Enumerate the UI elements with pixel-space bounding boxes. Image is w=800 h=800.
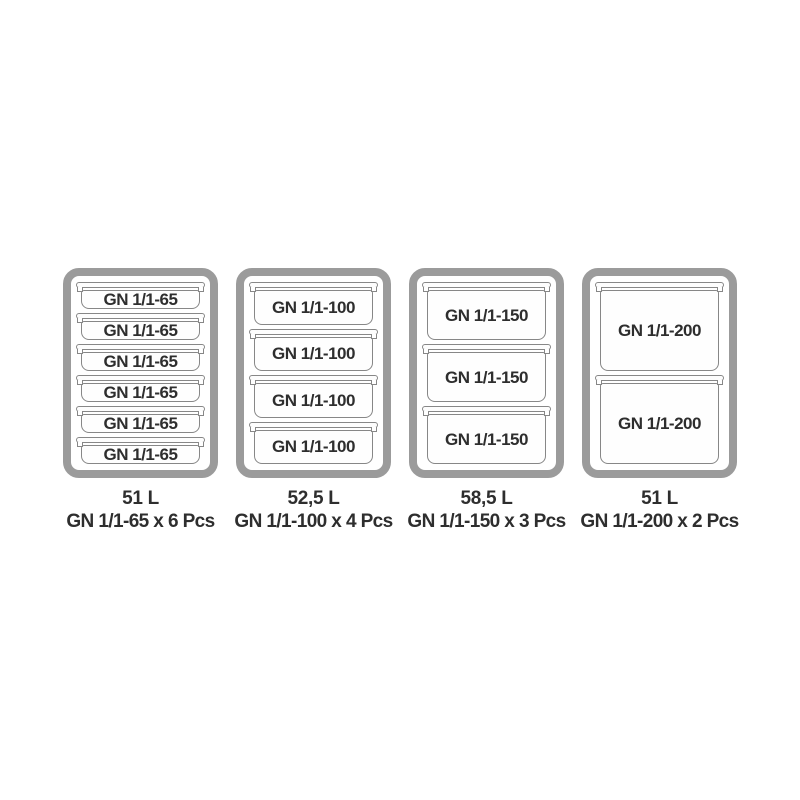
container-pan: GN 1/1-150 — [427, 290, 546, 340]
gn-container: GN 1/1-65 — [76, 437, 205, 464]
container-lid-icon — [249, 282, 378, 288]
container-pan: GN 1/1-65 — [81, 414, 200, 433]
container-label: GN 1/1-200 — [618, 322, 701, 339]
set-frame: GN 1/1-100 GN 1/1-100 GN 1/1-100 — [236, 268, 391, 478]
gn-container: GN 1/1-150 — [422, 282, 551, 340]
gn-container: GN 1/1-65 — [76, 344, 205, 371]
gn-container: GN 1/1-100 — [249, 329, 378, 372]
container-lid-icon — [249, 375, 378, 381]
container-lid-icon — [249, 329, 378, 335]
container-pan: GN 1/1-100 — [254, 290, 373, 325]
container-lid-icon — [422, 344, 551, 350]
container-lid-icon — [249, 422, 378, 428]
gn-container: GN 1/1-65 — [76, 406, 205, 433]
gn-container: GN 1/1-100 — [249, 282, 378, 325]
container-label: GN 1/1-150 — [445, 307, 528, 324]
set-frame: GN 1/1-65 GN 1/1-65 GN 1/1-65 — [63, 268, 218, 478]
container-pan: GN 1/1-200 — [600, 383, 719, 464]
container-label: GN 1/1-100 — [272, 345, 355, 362]
container-lid-icon — [422, 406, 551, 412]
container-lid-icon — [76, 437, 205, 443]
container-label: GN 1/1-100 — [272, 299, 355, 316]
container-pan: GN 1/1-65 — [81, 383, 200, 402]
volume-label: 51 L — [66, 487, 214, 510]
pieces-label: GN 1/1-100 x 4 Pcs — [234, 510, 392, 533]
container-set-gn-1-1-100: GN 1/1-100 GN 1/1-100 GN 1/1-100 — [236, 268, 391, 533]
container-label: GN 1/1-65 — [104, 415, 178, 432]
container-pan: GN 1/1-100 — [254, 430, 373, 465]
pieces-label: GN 1/1-65 x 6 Pcs — [66, 510, 214, 533]
gn-container: GN 1/1-150 — [422, 406, 551, 464]
container-pan: GN 1/1-150 — [427, 414, 546, 464]
container-pan: GN 1/1-100 — [254, 383, 373, 418]
container-set-gn-1-1-200: GN 1/1-200 GN 1/1-200 51 L GN 1/1-200 x … — [582, 268, 737, 533]
container-pan: GN 1/1-150 — [427, 352, 546, 402]
gn-container: GN 1/1-200 — [595, 282, 724, 371]
container-pan: GN 1/1-100 — [254, 337, 373, 372]
set-frame: GN 1/1-150 GN 1/1-150 GN 1/1-150 — [409, 268, 564, 478]
container-lid-icon — [76, 406, 205, 412]
container-label: GN 1/1-100 — [272, 392, 355, 409]
gn-container: GN 1/1-100 — [249, 375, 378, 418]
container-lid-icon — [76, 282, 205, 288]
gn-container: GN 1/1-65 — [76, 282, 205, 309]
container-pan: GN 1/1-65 — [81, 321, 200, 340]
container-label: GN 1/1-65 — [104, 322, 178, 339]
container-pan: GN 1/1-65 — [81, 290, 200, 309]
container-label: GN 1/1-100 — [272, 438, 355, 455]
container-lid-icon — [595, 282, 724, 288]
container-label: GN 1/1-65 — [104, 446, 178, 463]
pieces-label: GN 1/1-200 x 2 Pcs — [580, 510, 738, 533]
gn-container: GN 1/1-65 — [76, 313, 205, 340]
gn-container: GN 1/1-200 — [595, 375, 724, 464]
set-caption: 52,5 L GN 1/1-100 x 4 Pcs — [234, 487, 392, 533]
container-lid-icon — [76, 313, 205, 319]
pieces-label: GN 1/1-150 x 3 Pcs — [407, 510, 565, 533]
set-caption: 58,5 L GN 1/1-150 x 3 Pcs — [407, 487, 565, 533]
container-label: GN 1/1-150 — [445, 369, 528, 386]
gn-container: GN 1/1-65 — [76, 375, 205, 402]
product-diagram: GN 1/1-65 GN 1/1-65 GN 1/1-65 — [0, 0, 800, 800]
container-label: GN 1/1-200 — [618, 415, 701, 432]
container-set-gn-1-1-65: GN 1/1-65 GN 1/1-65 GN 1/1-65 — [63, 268, 218, 533]
gn-container: GN 1/1-150 — [422, 344, 551, 402]
container-label: GN 1/1-65 — [104, 291, 178, 308]
volume-label: 51 L — [580, 487, 738, 510]
set-caption: 51 L GN 1/1-65 x 6 Pcs — [66, 487, 214, 533]
container-sets-row: GN 1/1-65 GN 1/1-65 GN 1/1-65 — [0, 268, 800, 533]
container-pan: GN 1/1-65 — [81, 352, 200, 371]
container-label: GN 1/1-65 — [104, 384, 178, 401]
container-lid-icon — [76, 375, 205, 381]
gn-container: GN 1/1-100 — [249, 422, 378, 465]
container-label: GN 1/1-65 — [104, 353, 178, 370]
container-pan: GN 1/1-65 — [81, 445, 200, 464]
container-pan: GN 1/1-200 — [600, 290, 719, 371]
volume-label: 58,5 L — [407, 487, 565, 510]
container-lid-icon — [76, 344, 205, 350]
container-lid-icon — [422, 282, 551, 288]
volume-label: 52,5 L — [234, 487, 392, 510]
set-caption: 51 L GN 1/1-200 x 2 Pcs — [580, 487, 738, 533]
container-lid-icon — [595, 375, 724, 381]
set-frame: GN 1/1-200 GN 1/1-200 — [582, 268, 737, 478]
container-label: GN 1/1-150 — [445, 431, 528, 448]
container-set-gn-1-1-150: GN 1/1-150 GN 1/1-150 GN 1/1-150 — [409, 268, 564, 533]
